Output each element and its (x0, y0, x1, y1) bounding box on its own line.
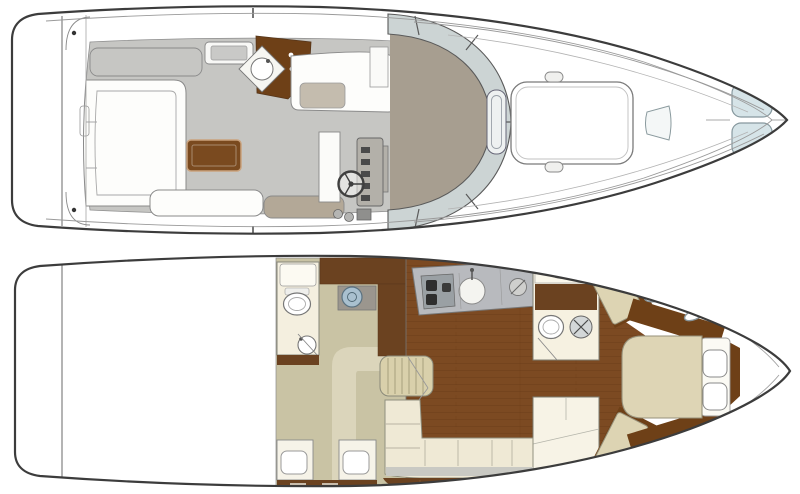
icebox-lid (211, 46, 247, 60)
helm-console-white (319, 132, 340, 202)
bed-pillow-port (703, 350, 727, 377)
aft-head-counter (280, 264, 316, 286)
mid-head-cabinet (535, 284, 597, 310)
galley-sink (459, 278, 485, 304)
berth-pillow-port (281, 451, 307, 474)
bar-faucet (266, 59, 270, 63)
settee-front-band (386, 467, 533, 476)
vanity-sink (342, 287, 362, 307)
guest-cabin-sink (530, 481, 543, 494)
main-deck-plan (12, 6, 787, 236)
steering-wheel (339, 172, 364, 197)
galley-locker-1 (432, 251, 464, 260)
helm-top-panel (370, 47, 388, 87)
foredeck-hatch (646, 106, 672, 140)
galley-locker-2 (470, 249, 502, 258)
aft-bench (90, 48, 202, 76)
galley-faucet-head (470, 268, 474, 272)
windshield-grab-rail (487, 90, 506, 154)
sun-pad (511, 82, 633, 164)
lower-deck-plan (15, 249, 790, 494)
aft-head-lower-cabinet (277, 355, 319, 365)
guest-cabin-basin (538, 473, 567, 488)
berth-pillow-starboard (343, 451, 369, 474)
island-bed (622, 336, 702, 418)
aft-cabin-wardrobe (378, 284, 406, 356)
companion-seat-cushion (300, 83, 345, 108)
yacht-floorplan (0, 0, 800, 494)
cleat-forward-bottom (545, 162, 563, 172)
aft-toilet (284, 293, 311, 315)
mid-toilet (539, 316, 564, 339)
bed-pillow-starboard (703, 383, 727, 410)
cleat-forward-top (545, 72, 563, 82)
floorplan-svg (0, 0, 800, 494)
aft-cabin-cabinet (320, 258, 406, 284)
cockpit-settee (84, 80, 187, 206)
cockpit-bench (150, 190, 263, 216)
